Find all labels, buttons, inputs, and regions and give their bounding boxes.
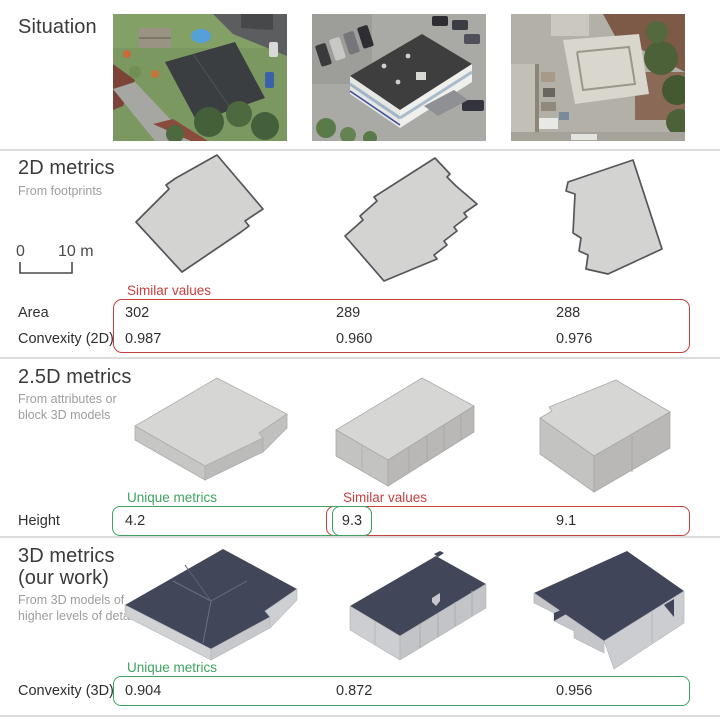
- annotation-unique-metrics-3d: Unique metrics: [127, 660, 217, 676]
- detailed-3d-model-1: [115, 543, 315, 665]
- metrics3d-title-line1: 3D metrics: [18, 545, 115, 568]
- convexity2d-value-1: 0.987: [125, 329, 161, 349]
- metrics2d-subtitle: From footprints: [18, 183, 102, 199]
- annotation-similar-values-2d: Similar values: [127, 283, 211, 299]
- height-value-2: 9.3: [332, 511, 372, 531]
- section-divider: [0, 715, 720, 717]
- convexity3d-row-label: Convexity (3D): [18, 681, 114, 701]
- convexity2d-value-2: 0.960: [336, 329, 372, 349]
- area-value-1: 302: [125, 303, 149, 323]
- aerial-photo-building-3: [511, 14, 685, 141]
- detailed-3d-model-2: [322, 546, 500, 668]
- block-model-2: [308, 368, 496, 496]
- scalebar-ten-label: 10 m: [58, 243, 94, 261]
- scale-bar: [19, 261, 75, 275]
- convexity2d-value-3: 0.976: [556, 329, 592, 349]
- similar-values-box-2d: [113, 299, 690, 353]
- area-value-3: 288: [556, 303, 580, 323]
- annotation-similar-values-25d: Similar values: [343, 490, 427, 506]
- height-value-1: 4.2: [125, 511, 145, 531]
- convexity2d-row-label: Convexity (2D): [18, 329, 114, 349]
- figure-root: Situation: [0, 0, 720, 725]
- metrics3d-subtitle-line1: From 3D models of: [18, 592, 124, 608]
- similar-values-box-height: [326, 506, 690, 536]
- aerial-photo-building-1: [113, 14, 287, 141]
- block-model-1: [115, 366, 305, 494]
- section-divider: [0, 357, 720, 359]
- metrics3d-title-line2: (our work): [18, 567, 109, 590]
- situation-title: Situation: [18, 16, 97, 39]
- convexity3d-value-3: 0.956: [556, 681, 592, 701]
- block-model-3: [508, 366, 688, 498]
- area-value-2: 289: [336, 303, 360, 323]
- convexity3d-value-2: 0.872: [336, 681, 372, 701]
- section-divider: [0, 149, 720, 151]
- convexity3d-value-1: 0.904: [125, 681, 161, 701]
- metrics2d-title: 2D metrics: [18, 157, 115, 180]
- metrics25d-subtitle-line2: block 3D models: [18, 407, 110, 423]
- unique-metrics-box-3d: [113, 676, 690, 706]
- height-value-3: 9.1: [556, 511, 576, 531]
- footprint-shape-1: [110, 152, 300, 297]
- height-row-label: Height: [18, 511, 60, 531]
- area-row-label: Area: [18, 303, 49, 323]
- metrics25d-subtitle-line1: From attributes or: [18, 391, 117, 407]
- scalebar-zero-label: 0: [16, 243, 25, 261]
- section-divider: [0, 536, 720, 538]
- annotation-unique-metrics-25d: Unique metrics: [127, 490, 217, 506]
- footprint-shape-3: [505, 152, 700, 297]
- footprint-shape-2: [305, 152, 500, 297]
- detailed-3d-model-3: [512, 541, 700, 671]
- aerial-photo-building-2: [312, 14, 486, 141]
